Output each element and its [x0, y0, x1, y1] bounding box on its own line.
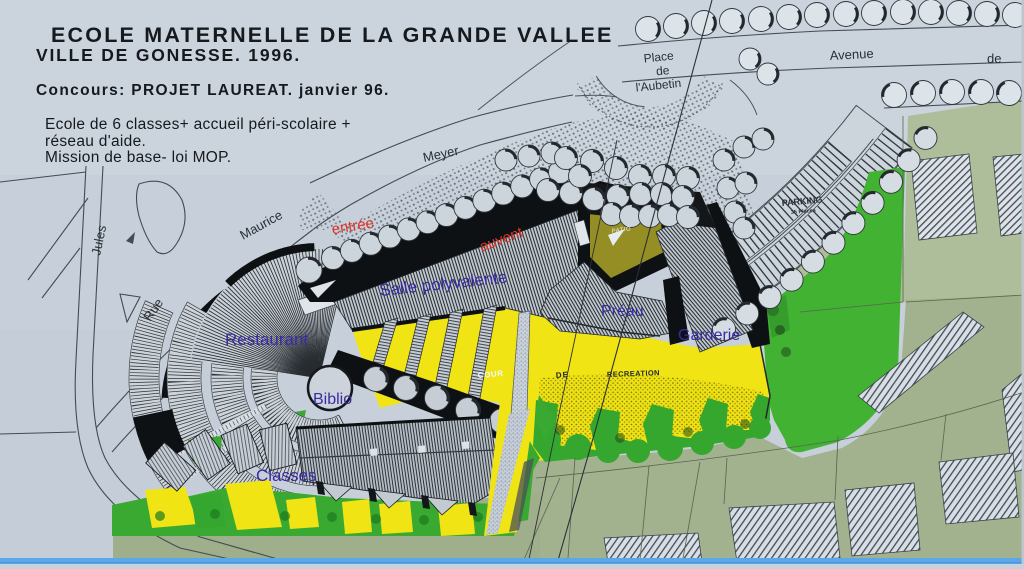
svg-text:VILLE DE GONESSE. 1996.: VILLE DE GONESSE. 1996. — [36, 45, 301, 65]
svg-text:Préau: Préau — [601, 303, 644, 320]
svg-text:Avenue: Avenue — [829, 46, 874, 63]
svg-text:Ecole de 6 classes+ accueil pé: Ecole de 6 classes+ accueil péri-scolair… — [45, 116, 351, 133]
svg-text:Biblio: Biblio — [313, 391, 352, 408]
svg-text:DE: DE — [556, 370, 570, 380]
svg-text:de: de — [987, 51, 1001, 66]
svg-text:Classes: Classes — [256, 466, 316, 485]
svg-text:réseau d'aide.: réseau d'aide. — [45, 133, 146, 150]
svg-text:Concours: PROJET LAUREAT. janv: Concours: PROJET LAUREAT. janvier 96. — [36, 82, 390, 99]
svg-text:Garderie: Garderie — [678, 327, 740, 344]
svg-text:ECOLE MATERNELLE DE LA GRANDE: ECOLE MATERNELLE DE LA GRANDE VALLEE — [51, 23, 614, 47]
svg-text:RECREATION: RECREATION — [607, 368, 660, 379]
svg-text:Restaurant: Restaurant — [225, 330, 308, 349]
svg-text:de: de — [655, 63, 670, 78]
svg-text:Mission de base- loi MOP.: Mission de base- loi MOP. — [45, 149, 231, 166]
